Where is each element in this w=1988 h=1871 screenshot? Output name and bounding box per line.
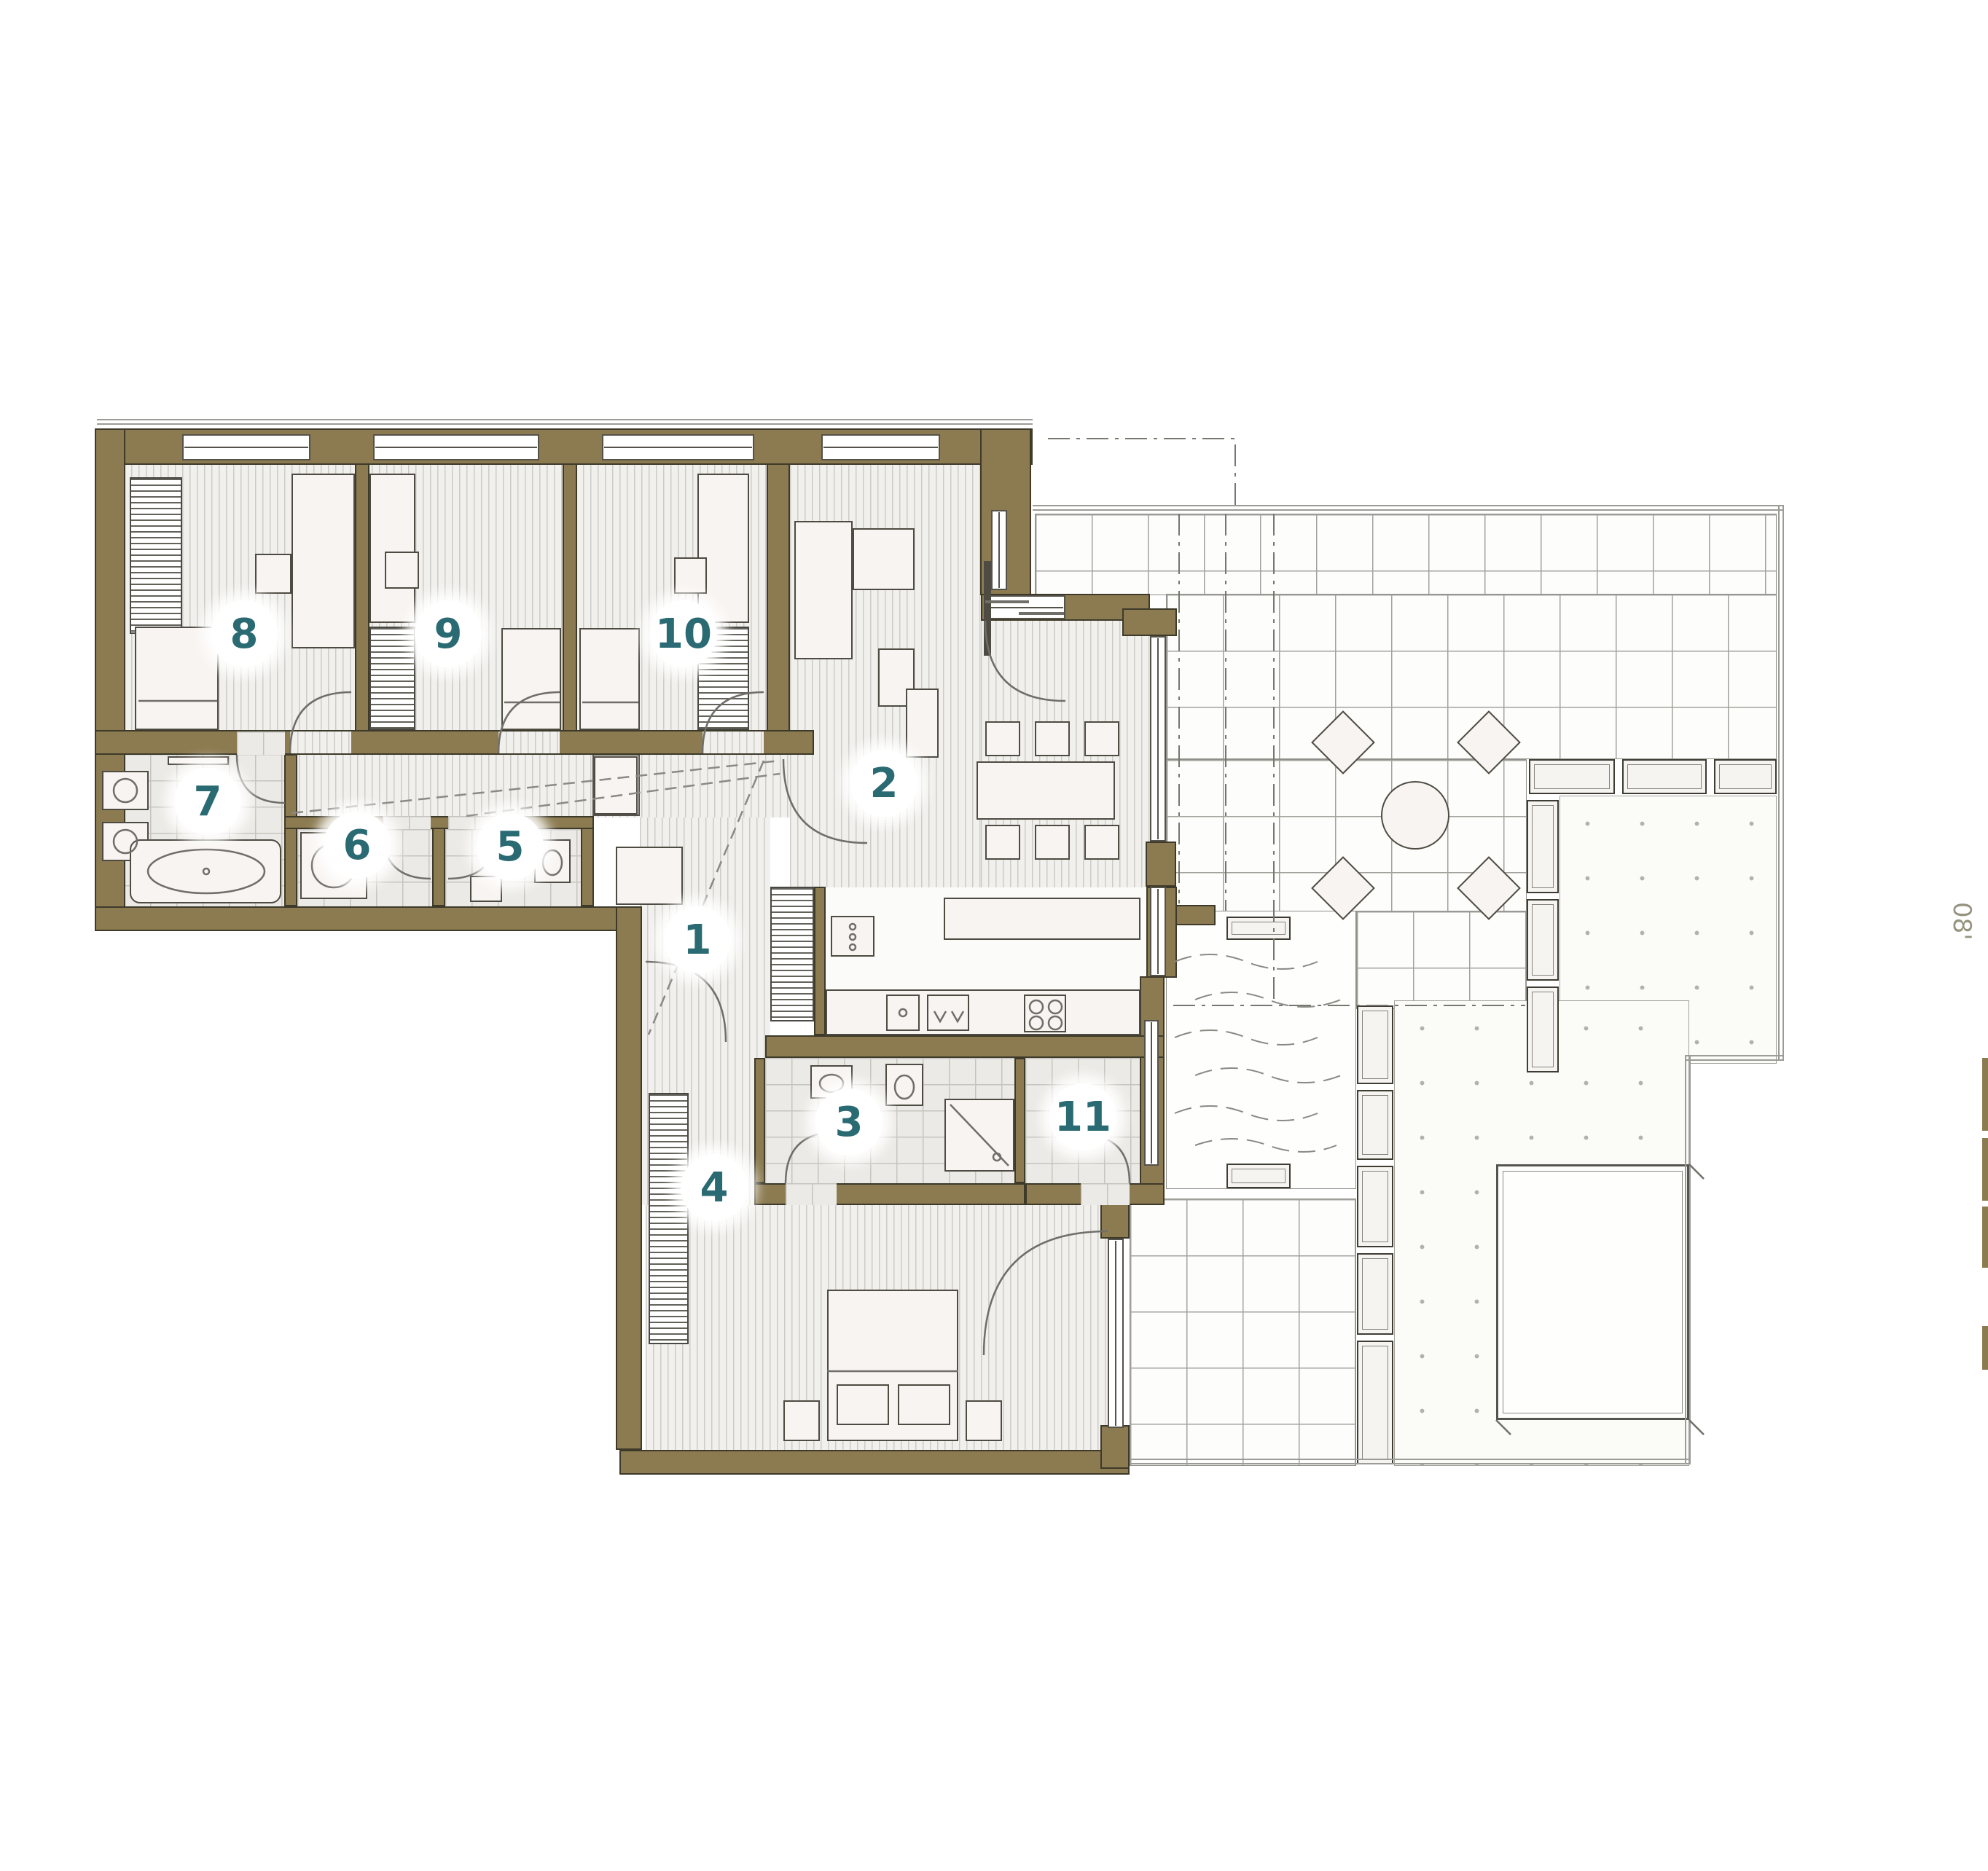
skylight	[1496, 1164, 1689, 1420]
pillow	[898, 1384, 950, 1425]
wall-corner-se	[1122, 608, 1177, 636]
chair	[1084, 825, 1119, 860]
window	[182, 434, 310, 460]
planter	[1527, 987, 1559, 1072]
room-label-4: 4	[681, 1154, 748, 1221]
planter	[1357, 1005, 1393, 1084]
planter	[1714, 759, 1777, 794]
room-label-1: 1	[664, 906, 731, 973]
pillow	[837, 1384, 889, 1425]
planter	[1357, 1341, 1393, 1464]
room-label-6: 6	[324, 812, 391, 879]
planter	[1527, 899, 1559, 981]
toilet	[885, 1064, 923, 1106]
wall-room6-5	[432, 816, 445, 906]
wall-room8-9	[355, 463, 369, 731]
shower	[944, 1099, 1014, 1172]
planter	[1226, 917, 1291, 940]
room-number: 5	[496, 823, 525, 871]
wall-room9-10	[563, 463, 577, 731]
cooktop	[1024, 995, 1066, 1032]
door-gap-bath7	[237, 731, 285, 755]
oven-tower	[831, 916, 874, 957]
planter	[1357, 1090, 1393, 1160]
bathtub	[130, 839, 281, 903]
room-number: 8	[230, 611, 259, 658]
wardrobe	[130, 477, 182, 634]
window	[821, 434, 940, 460]
planter	[1357, 1253, 1393, 1335]
window	[373, 434, 539, 460]
room-number: 10	[655, 611, 712, 658]
wall-room4-south	[619, 1450, 1130, 1475]
door-gap-room10	[703, 731, 764, 753]
wall-room3-11	[1014, 1058, 1025, 1183]
door-gap-room9	[498, 731, 560, 753]
bed	[135, 627, 219, 730]
desk	[255, 554, 291, 594]
wall-room3-left	[754, 1058, 765, 1183]
cabinet	[291, 474, 355, 648]
room-label-5: 5	[477, 813, 544, 880]
washbasin	[102, 771, 149, 810]
dimension-value: 08'	[1947, 902, 1976, 941]
room-label-3: 3	[815, 1089, 883, 1156]
window	[991, 510, 1007, 590]
terrace-grid	[1356, 911, 1527, 1009]
bed	[501, 628, 561, 730]
corridor-floor-horizontal	[284, 753, 790, 817]
wall-room5-east	[581, 816, 594, 906]
terrace-grid	[1035, 514, 1777, 595]
cabinet	[697, 474, 749, 623]
room-label-2: 2	[850, 750, 917, 817]
round-table	[1381, 781, 1449, 850]
wall-pier-east	[1146, 842, 1176, 887]
room-number: 4	[700, 1164, 729, 1212]
wall-corridor-west	[616, 906, 642, 1450]
terrace-grid	[1130, 1199, 1356, 1466]
chair	[985, 825, 1020, 860]
door-gap-room6	[383, 816, 431, 829]
glazing-east	[1150, 636, 1166, 842]
terrace-sliding-door	[985, 595, 1065, 619]
terrace-edge	[1033, 505, 1784, 511]
sofa	[794, 521, 853, 659]
room-number: 7	[194, 778, 222, 825]
dining-table	[977, 761, 1115, 820]
chair	[985, 721, 1020, 756]
wall-closet	[814, 887, 826, 1035]
wall-stub	[1982, 1058, 1988, 1131]
planter	[1527, 800, 1559, 893]
hall-closet	[770, 887, 814, 1021]
wall-room4-east-pier	[1100, 1425, 1130, 1469]
terrace-edge	[1131, 1459, 1691, 1464]
nightstand	[966, 1400, 1002, 1441]
window	[602, 434, 754, 460]
washbasin	[470, 876, 502, 902]
desk	[385, 552, 419, 589]
tv	[984, 561, 991, 656]
bed	[579, 628, 640, 730]
room-label-10: 10	[650, 600, 717, 667]
sofa-chaise	[853, 528, 915, 590]
closet	[616, 847, 683, 905]
terrace-door-room4	[1108, 1239, 1124, 1428]
wardrobe	[649, 1093, 689, 1344]
wall-stub	[1982, 1207, 1988, 1268]
wall-kitchen-south	[765, 1035, 1165, 1058]
chair	[1035, 721, 1070, 756]
door-gap-room8	[290, 731, 351, 753]
glazing-east	[1150, 887, 1166, 976]
planter	[1226, 1164, 1291, 1188]
wall-bath7-east	[284, 754, 297, 906]
kitchen-sink-cabinet	[886, 995, 920, 1031]
window-room11	[1144, 1020, 1159, 1166]
wall-room10-2	[767, 463, 790, 731]
dishwasher	[927, 995, 969, 1031]
terrace-edge	[1778, 505, 1784, 1061]
door-gap-room11	[1081, 1183, 1130, 1205]
terrace-edge	[1685, 1055, 1691, 1464]
wall-stub	[1982, 1326, 1988, 1370]
room-number: 2	[870, 760, 899, 807]
wall-stub	[1982, 1138, 1988, 1201]
wall-bathrow-bottom	[95, 906, 641, 931]
desk	[674, 557, 707, 594]
side-table	[906, 689, 939, 758]
room-number: 3	[835, 1099, 864, 1146]
room-label-8: 8	[211, 600, 278, 667]
room-number: 11	[1054, 1094, 1111, 1141]
room-label-11: 11	[1049, 1083, 1116, 1150]
terrace-edge	[1685, 1055, 1784, 1061]
door-gap-room3	[786, 1183, 837, 1205]
kitchen-island	[944, 898, 1140, 940]
kitchen-counter	[826, 989, 1140, 1035]
room-number: 6	[343, 822, 372, 869]
deck-edge-stub	[1175, 905, 1216, 925]
room-number: 1	[684, 917, 712, 964]
room-label-9: 9	[415, 600, 482, 667]
planter	[1357, 1166, 1393, 1247]
floor-plan: 1 2 3 4 5 6 7 8 9 10 11 08'	[0, 0, 1988, 1871]
wood-deck	[1166, 911, 1356, 1189]
towel-radiator	[168, 756, 229, 765]
cabinet	[369, 474, 415, 623]
chair	[1084, 721, 1119, 756]
wall-room4-east-pier	[1100, 1201, 1130, 1239]
roof-edge	[97, 419, 1033, 425]
closet	[594, 756, 638, 815]
planter	[1529, 759, 1615, 794]
dimension-text: 08'	[1947, 902, 1976, 941]
nightstand	[783, 1400, 820, 1441]
planter	[1622, 759, 1707, 794]
room-label-7: 7	[174, 768, 241, 835]
chair	[1035, 825, 1070, 860]
room-number: 9	[434, 611, 463, 658]
wardrobe	[369, 627, 415, 730]
